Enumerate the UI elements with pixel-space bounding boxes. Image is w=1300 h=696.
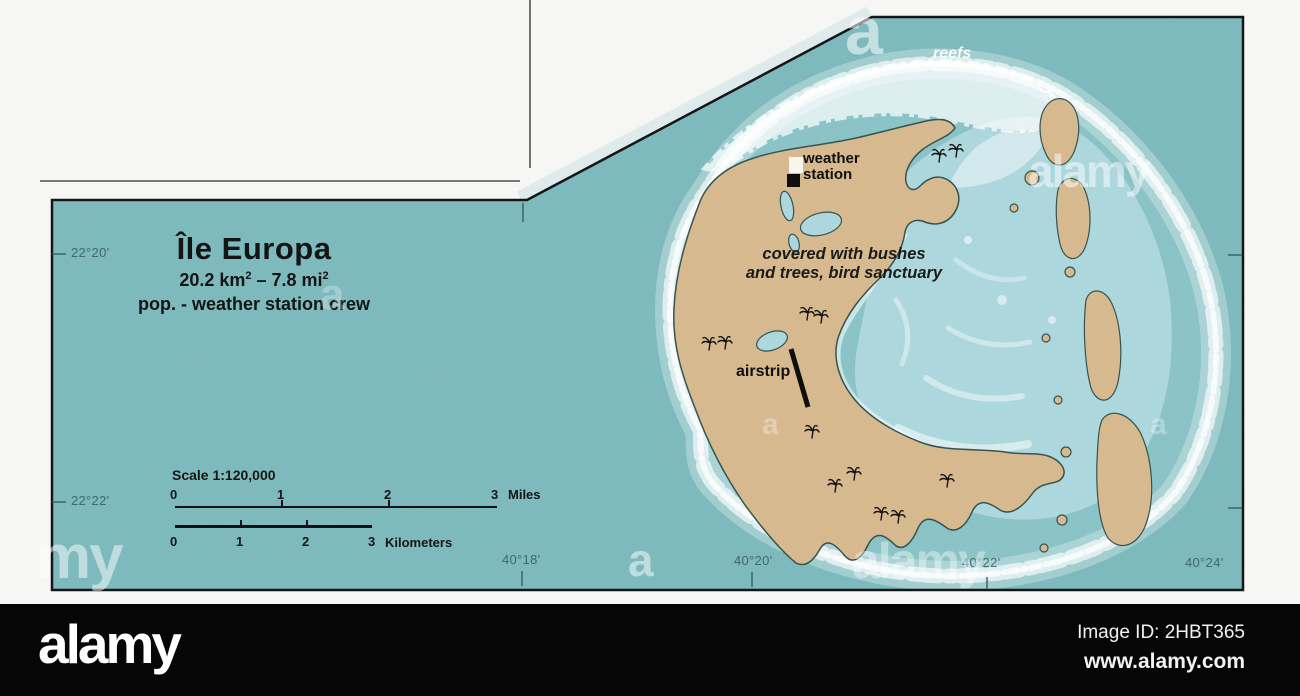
area-km: 20.2 km	[179, 270, 245, 290]
lon-label-4018: 40°18'	[502, 552, 540, 567]
airstrip-label: airstrip	[736, 363, 790, 381]
alamy-url: www.alamy.com	[1077, 650, 1245, 674]
km-tick	[306, 520, 308, 526]
vegetation-label: covered with bushes and trees, bird sanc…	[736, 245, 952, 283]
km-2: 2	[302, 534, 309, 549]
area-mi-sup: 2	[323, 270, 329, 282]
km-1: 1	[236, 534, 243, 549]
miles-0: 0	[170, 487, 177, 502]
alamy-bar-right: Image ID: 2HBT365 www.alamy.com	[1077, 622, 1245, 674]
lon-label-4022: 40°22'	[962, 555, 1000, 570]
weather-station-label: weather station	[803, 151, 860, 183]
title-block: Île Europa 20.2 km2 – 7.8 mi2 pop. - wea…	[118, 232, 390, 315]
km-0: 0	[170, 534, 177, 549]
map-population: pop. - weather station crew	[118, 294, 390, 315]
image-id: Image ID: 2HBT365	[1077, 622, 1245, 644]
miles-bar	[175, 506, 497, 508]
sheet-lines	[40, 0, 530, 181]
scale-label: Scale 1:120,000	[172, 467, 276, 483]
vegetation-line2: and trees, bird sanctuary	[736, 264, 952, 283]
miles-tick	[388, 500, 390, 506]
alamy-logo: alamy	[38, 612, 179, 676]
weather-station-line1: weather	[803, 151, 860, 167]
lat-label-2222: 22°22'	[71, 493, 109, 508]
map-title: Île Europa	[118, 232, 390, 266]
vegetation-line1: covered with bushes	[736, 245, 952, 264]
weather-station-halo	[789, 157, 803, 173]
alamy-bar: alamy Image ID: 2HBT365 www.alamy.com	[0, 604, 1300, 696]
miles-unit: Miles	[508, 487, 541, 502]
weather-station-line2: station	[803, 167, 860, 183]
miles-3: 3	[491, 487, 498, 502]
miles-tick	[281, 500, 283, 506]
area-mi: – 7.8 mi	[252, 270, 323, 290]
lon-label-4024: 40°24'	[1185, 555, 1223, 570]
weather-station-icon	[787, 174, 800, 187]
map-canvas	[0, 0, 1300, 696]
lat-label-2220: 22°20'	[71, 245, 109, 260]
stock-photo-map-ile-europa: Île Europa 20.2 km2 – 7.8 mi2 pop. - wea…	[0, 0, 1300, 696]
lon-label-4020: 40°20'	[734, 553, 772, 568]
km-bar	[175, 525, 372, 528]
km-unit: Kilometers	[385, 535, 452, 550]
km-tick	[240, 520, 242, 526]
km-3: 3	[368, 534, 375, 549]
reefs-label: reefs	[933, 45, 971, 63]
map-area: 20.2 km2 – 7.8 mi2	[118, 270, 390, 291]
